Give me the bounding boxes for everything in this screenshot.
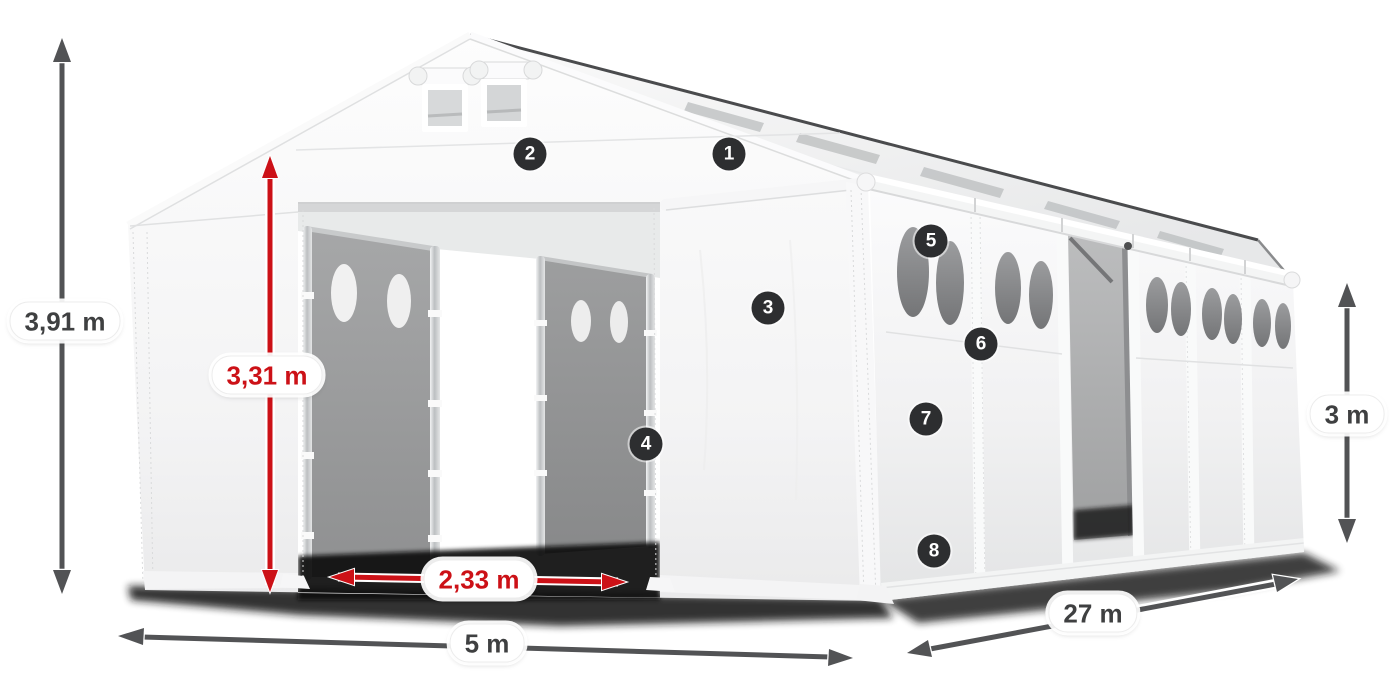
- dim-label-total-height: 3,91 m: [10, 302, 121, 341]
- inner-partition-right: [534, 256, 657, 556]
- side-door-opening: [1068, 234, 1134, 540]
- partition-window: [571, 300, 591, 342]
- partition-window: [387, 274, 411, 328]
- partition-window: [610, 301, 628, 343]
- marker-8: 8: [918, 535, 951, 568]
- marker-2: 2: [514, 138, 547, 171]
- dim-label-side-height: 3 m: [1310, 395, 1385, 434]
- marker-5: 5: [915, 225, 948, 258]
- dim-label-front-width: 5 m: [450, 624, 525, 663]
- tent-dimension-diagram: 3,91 m 3,31 m 2,33 m 5 m 27 m 3 m 1 2 3 …: [0, 0, 1400, 700]
- marker-1: 1: [713, 138, 746, 171]
- marker-7: 7: [910, 403, 943, 436]
- marker-6: 6: [965, 328, 998, 361]
- marker-4: 4: [630, 428, 663, 461]
- frame-pole: [303, 226, 312, 580]
- entrance-interior: [298, 203, 660, 600]
- dim-label-side-length: 27 m: [1048, 594, 1137, 633]
- dim-label-entrance-width: 2,33 m: [424, 560, 535, 599]
- frame-pole: [430, 246, 440, 579]
- tent-illustration: [0, 0, 1400, 700]
- partition-window: [331, 264, 357, 322]
- frame-pole: [536, 256, 545, 556]
- inner-partition-left: [301, 226, 442, 580]
- marker-3: 3: [752, 292, 785, 325]
- dim-label-entrance-height: 3,31 m: [212, 356, 323, 395]
